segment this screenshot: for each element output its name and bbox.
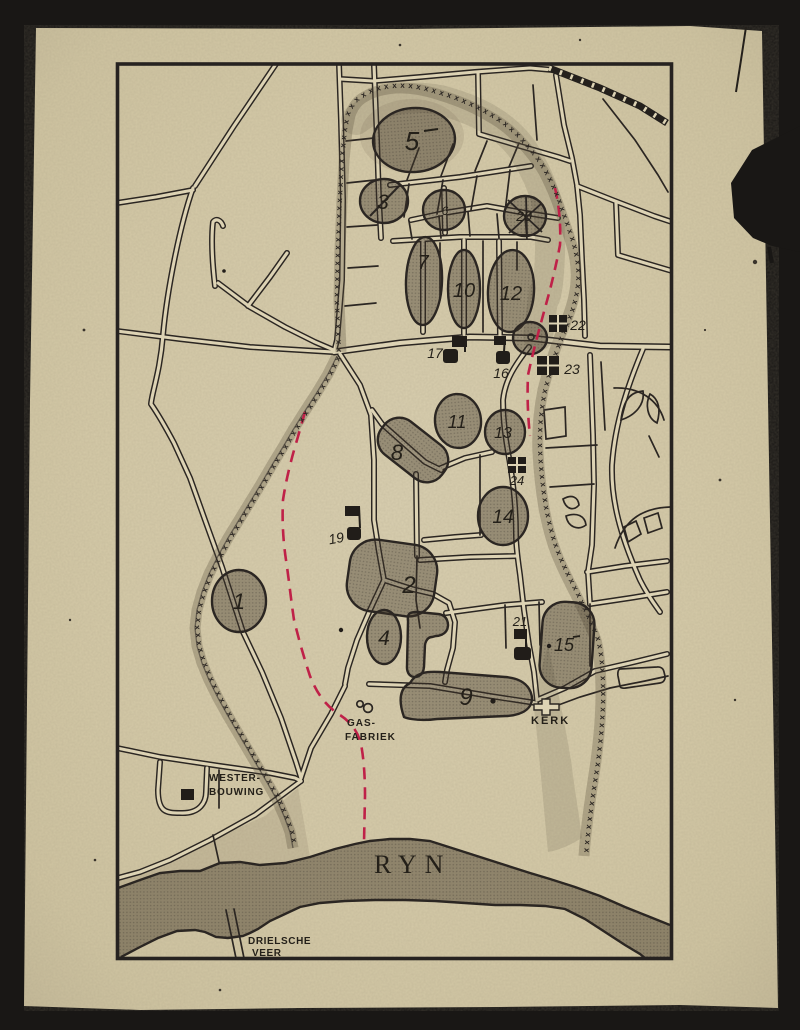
- svg-text:1: 1: [233, 589, 245, 614]
- svg-text:5: 5: [405, 126, 420, 156]
- svg-text:12: 12: [500, 283, 522, 305]
- svg-text:13: 13: [494, 425, 512, 442]
- svg-text:WESTER-: WESTER-: [209, 773, 261, 784]
- svg-text:20: 20: [515, 208, 532, 224]
- svg-text:2: 2: [401, 572, 415, 599]
- svg-text:BOUWING: BOUWING: [209, 787, 264, 798]
- svg-text:15: 15: [554, 635, 575, 655]
- svg-text:16: 16: [493, 365, 509, 381]
- svg-text:DRIELSCHE: DRIELSCHE: [248, 936, 311, 947]
- svg-text:23: 23: [563, 361, 580, 377]
- svg-text:7: 7: [417, 252, 429, 274]
- svg-text:9: 9: [459, 684, 472, 711]
- svg-text:21: 21: [512, 614, 527, 629]
- svg-text:24: 24: [509, 473, 524, 488]
- svg-text:3: 3: [377, 191, 389, 214]
- svg-text:17: 17: [427, 345, 444, 361]
- svg-text:8: 8: [391, 440, 404, 465]
- svg-text:22: 22: [569, 317, 586, 333]
- svg-text:GAS-: GAS-: [347, 718, 376, 729]
- svg-text:FABRIEK: FABRIEK: [345, 732, 396, 743]
- svg-text:KERK: KERK: [531, 715, 570, 727]
- svg-text:RYN: RYN: [374, 850, 451, 879]
- svg-text:10: 10: [453, 280, 475, 302]
- svg-text:6: 6: [442, 204, 449, 218]
- svg-text:4: 4: [378, 627, 390, 650]
- svg-text:19: 19: [327, 529, 345, 547]
- svg-text:11: 11: [448, 412, 467, 432]
- svg-text:14: 14: [492, 507, 513, 528]
